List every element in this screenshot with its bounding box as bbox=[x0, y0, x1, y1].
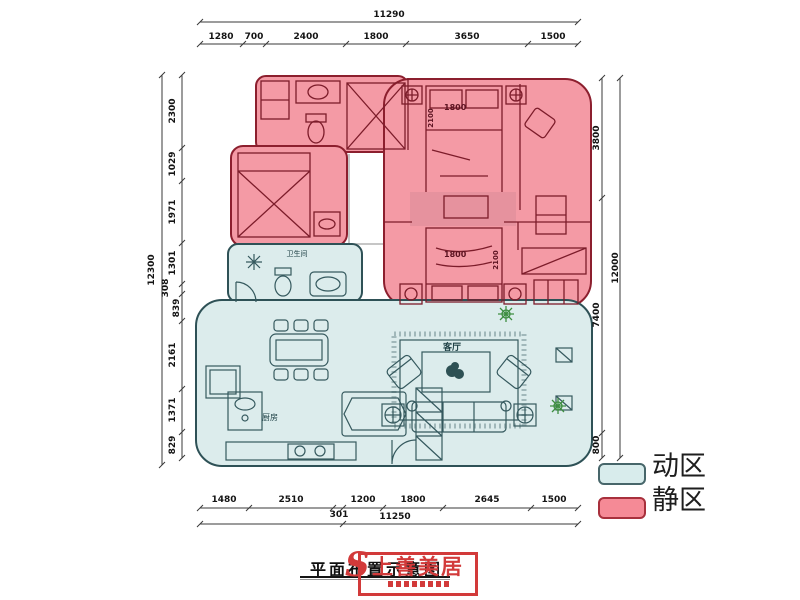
dim-label: 1971 bbox=[168, 199, 178, 224]
dim-label: 1301 bbox=[168, 250, 178, 275]
dim-label: 3650 bbox=[454, 32, 479, 42]
floorplan-page: 11290 1280 700 2400 1800 3650 1500 1480 … bbox=[0, 0, 800, 600]
room-label-bathroom: 卫生间 bbox=[287, 249, 308, 259]
dim-label: 3800 bbox=[592, 125, 602, 150]
dim-label: 1029 bbox=[168, 151, 178, 176]
room-label-kitchen: 厨房 bbox=[262, 412, 278, 423]
bed-size-label: 2100 bbox=[427, 108, 435, 127]
dim-label: 1800 bbox=[400, 495, 425, 505]
dim-label: 700 bbox=[245, 32, 264, 42]
legend-label-active-zone: 动区 bbox=[652, 453, 706, 480]
legend-label-quiet-zone: 静区 bbox=[652, 487, 706, 514]
bed-size-label: 1800 bbox=[444, 103, 466, 112]
dim-label: 12000 bbox=[611, 252, 621, 283]
dim-label: 11290 bbox=[373, 10, 404, 20]
dim-label: 1500 bbox=[540, 32, 565, 42]
dim-label: 2300 bbox=[168, 98, 178, 123]
dim-label: 308 bbox=[161, 279, 171, 298]
dim-label: 1200 bbox=[350, 495, 375, 505]
dim-label: 1371 bbox=[168, 397, 178, 422]
dim-label: 2400 bbox=[293, 32, 318, 42]
bed-size-label: 1800 bbox=[444, 250, 466, 259]
bed-size-label: 2100 bbox=[492, 250, 500, 269]
corridor-walls bbox=[349, 154, 383, 244]
dim-label: 2510 bbox=[278, 495, 303, 505]
dim-label: 829 bbox=[168, 436, 178, 455]
dim-label: 11250 bbox=[379, 512, 410, 522]
dim-label: 2161 bbox=[168, 342, 178, 367]
dim-label: 12300 bbox=[147, 254, 157, 285]
dim-label: 839 bbox=[172, 299, 182, 318]
legend-swatch-active-zone bbox=[598, 463, 646, 485]
stamp-logo-icon: S bbox=[345, 545, 370, 585]
dim-label: 1500 bbox=[541, 495, 566, 505]
dim-label: 301 bbox=[330, 510, 349, 520]
dim-label: 800 bbox=[592, 436, 602, 455]
stamp-fine-print bbox=[361, 581, 475, 587]
dim-label: 1480 bbox=[211, 495, 236, 505]
dim-label: 1280 bbox=[208, 32, 233, 42]
dim-label: 2645 bbox=[474, 495, 499, 505]
company-stamp: S 上善美居 bbox=[358, 552, 478, 596]
room-label-living: 客厅 bbox=[443, 340, 461, 353]
dim-label: 1800 bbox=[363, 32, 388, 42]
legend-swatch-quiet-zone bbox=[598, 497, 646, 519]
stamp-text: 上善美居 bbox=[361, 555, 475, 580]
dim-label: 7400 bbox=[592, 302, 602, 327]
